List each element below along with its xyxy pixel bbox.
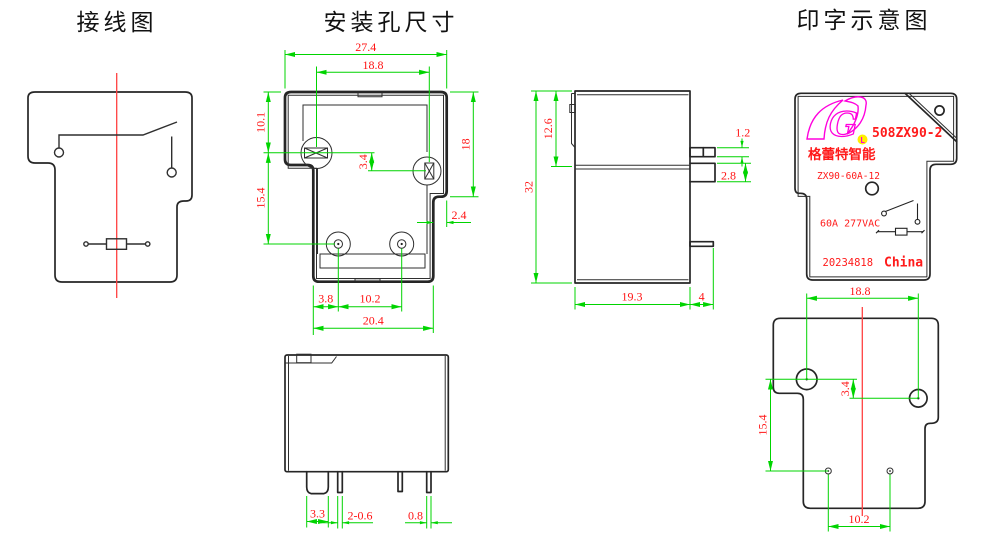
side-dimensions: 32 12.6 1.2 2.8 19.3 4 <box>521 91 751 310</box>
dim-flange-height: 18 <box>459 138 473 150</box>
bottom-dimensions: 18.8 3.4 15.4 10.2 <box>756 284 919 532</box>
dim-top-to-slot: 10.1 <box>253 112 267 133</box>
center-hole <box>866 182 879 195</box>
printed-circuit-symbol <box>876 201 925 236</box>
housing-outline <box>285 92 447 282</box>
date-code-text: 20234818 <box>823 257 874 269</box>
dim-qc-pin-width: 3.3 <box>310 506 325 520</box>
mounting-top-view: 27.4 18.8 10.1 15.4 3.4 18 2.4 3.8 <box>253 40 478 335</box>
dim-slot-offset: 3.4 <box>356 154 370 169</box>
dim-overall-width: 27.4 <box>355 40 376 54</box>
case-outline <box>285 355 448 472</box>
housing-inner-wall <box>288 95 443 278</box>
brand-text: 格蕾特智能 <box>808 146 876 163</box>
relay-drawing-svg: 接线图 安装孔尺寸 印字示意图 <box>0 0 988 541</box>
dim-tab-thickness: 1.2 <box>735 126 750 140</box>
dim-pinhole-spacing: 10.2 <box>849 512 870 526</box>
logo-letter: L <box>860 136 865 145</box>
pin-holes <box>825 468 893 474</box>
dim-hole-to-pinhole: 15.4 <box>756 415 770 436</box>
dim-hole-spacing: 18.8 <box>850 284 871 298</box>
dim-overall-height: 32 <box>521 181 535 193</box>
front-view: 3.3 2-0.6 0.8 <box>285 354 452 528</box>
dim-slot-spacing: 18.8 <box>363 58 384 72</box>
mounting-title: 安装孔尺寸 <box>324 10 459 36</box>
right-mounting-slot <box>425 163 434 179</box>
dim-pin-width: 0.8 <box>408 508 423 522</box>
dim-body-depth: 19.3 <box>622 289 643 303</box>
side-view: 32 12.6 1.2 2.8 19.3 4 <box>521 91 751 310</box>
mounting-dimensions: 27.4 18.8 10.1 15.4 3.4 18 2.4 3.8 <box>253 40 478 335</box>
dim-edge-to-hole: 3.8 <box>318 291 333 305</box>
wiring-title: 接线图 <box>77 10 158 36</box>
dim-slot-to-hole: 15.4 <box>253 188 267 209</box>
side-tabs <box>690 148 715 247</box>
terminal-pins <box>307 472 431 494</box>
brand-logo: G L <box>807 97 868 145</box>
bottom-outline <box>773 318 938 508</box>
dim-flange-thickness: 2.8 <box>721 169 736 183</box>
rating-text: 60A 277VAC <box>820 219 880 230</box>
front-dimensions: 3.3 2-0.6 0.8 <box>307 496 452 529</box>
marking-title: 印字示意图 <box>797 8 932 34</box>
dim-step-width: 2.4 <box>452 208 467 222</box>
dim-hole-spacing: 10.2 <box>360 291 381 305</box>
switch-symbol <box>55 122 178 177</box>
side-outline <box>575 91 690 283</box>
origin-text: China <box>884 256 923 271</box>
wiring-diagram-view <box>28 73 192 298</box>
label-outline <box>795 93 957 280</box>
marking-view: G L 508ZX90-2 格蕾特智能 ZX90-60A-12 60A 277V… <box>795 93 957 280</box>
pin-holes <box>334 240 406 248</box>
drawing-sheet: 接线图 安装孔尺寸 印字示意图 <box>0 0 988 541</box>
bottom-view: 18.8 3.4 15.4 10.2 <box>756 284 939 532</box>
dim-flange-offset: 12.6 <box>541 118 555 139</box>
type-code-text: ZX90-60A-12 <box>817 171 880 182</box>
model-text: 508ZX90-2 <box>872 126 942 141</box>
dim-coil-pin-width: 2-0.6 <box>348 508 373 522</box>
corner-hole <box>935 106 944 115</box>
dim-hole-offset: 3.4 <box>838 381 852 396</box>
dim-body-width: 20.4 <box>363 313 384 327</box>
dim-tab-overhang: 4 <box>699 289 705 303</box>
relay-outline <box>28 92 192 282</box>
